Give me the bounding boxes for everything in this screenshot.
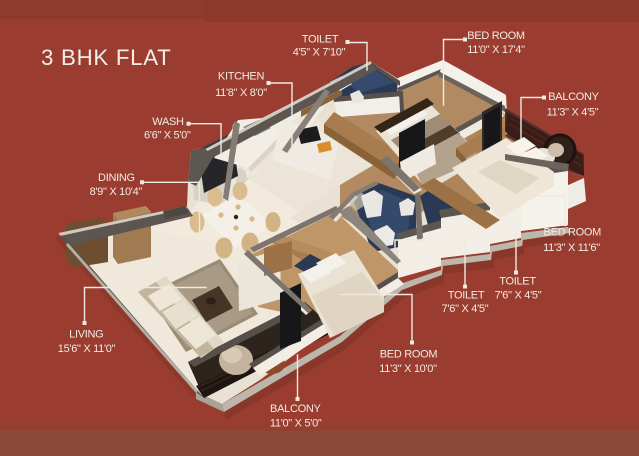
svg-text:WASH: WASH	[152, 116, 184, 128]
svg-text:LIVING: LIVING	[69, 328, 103, 340]
svg-text:8'9" X 10'4": 8'9" X 10'4"	[90, 186, 143, 198]
svg-text:BALCONY: BALCONY	[548, 91, 599, 103]
svg-text:BED ROOM: BED ROOM	[467, 30, 525, 42]
svg-text:KITCHEN: KITCHEN	[218, 70, 265, 82]
svg-text:TOILET: TOILET	[448, 289, 485, 301]
svg-text:11'3" X 11'6": 11'3" X 11'6"	[543, 242, 600, 254]
svg-text:4'5" X 7'10": 4'5" X 7'10"	[293, 47, 346, 59]
svg-text:6'6" X 5'0": 6'6" X 5'0"	[144, 130, 191, 142]
svg-text:BED ROOM: BED ROOM	[544, 226, 602, 238]
svg-text:11'3" X 10'0": 11'3" X 10'0"	[379, 363, 437, 375]
svg-text:BALCONY: BALCONY	[270, 403, 321, 415]
svg-text:DINING: DINING	[98, 172, 135, 184]
svg-text:11'3" X 4'5": 11'3" X 4'5"	[547, 106, 599, 118]
svg-text:BED ROOM: BED ROOM	[380, 348, 438, 360]
svg-text:3 BHK FLAT: 3 BHK FLAT	[41, 45, 172, 70]
svg-text:TOILET: TOILET	[499, 275, 536, 287]
svg-text:7'6" X 4'5": 7'6" X 4'5"	[442, 303, 489, 315]
svg-text:11'8" X 8'0": 11'8" X 8'0"	[215, 87, 267, 99]
svg-text:11'0" X 17'4": 11'0" X 17'4"	[467, 44, 525, 56]
svg-text:15'6" X 11'0": 15'6" X 11'0"	[58, 343, 116, 355]
svg-text:TOILET: TOILET	[302, 34, 339, 46]
svg-text:7'6" X 4'5": 7'6" X 4'5"	[495, 289, 542, 301]
svg-text:11'0" X 5'0": 11'0" X 5'0"	[270, 417, 322, 429]
